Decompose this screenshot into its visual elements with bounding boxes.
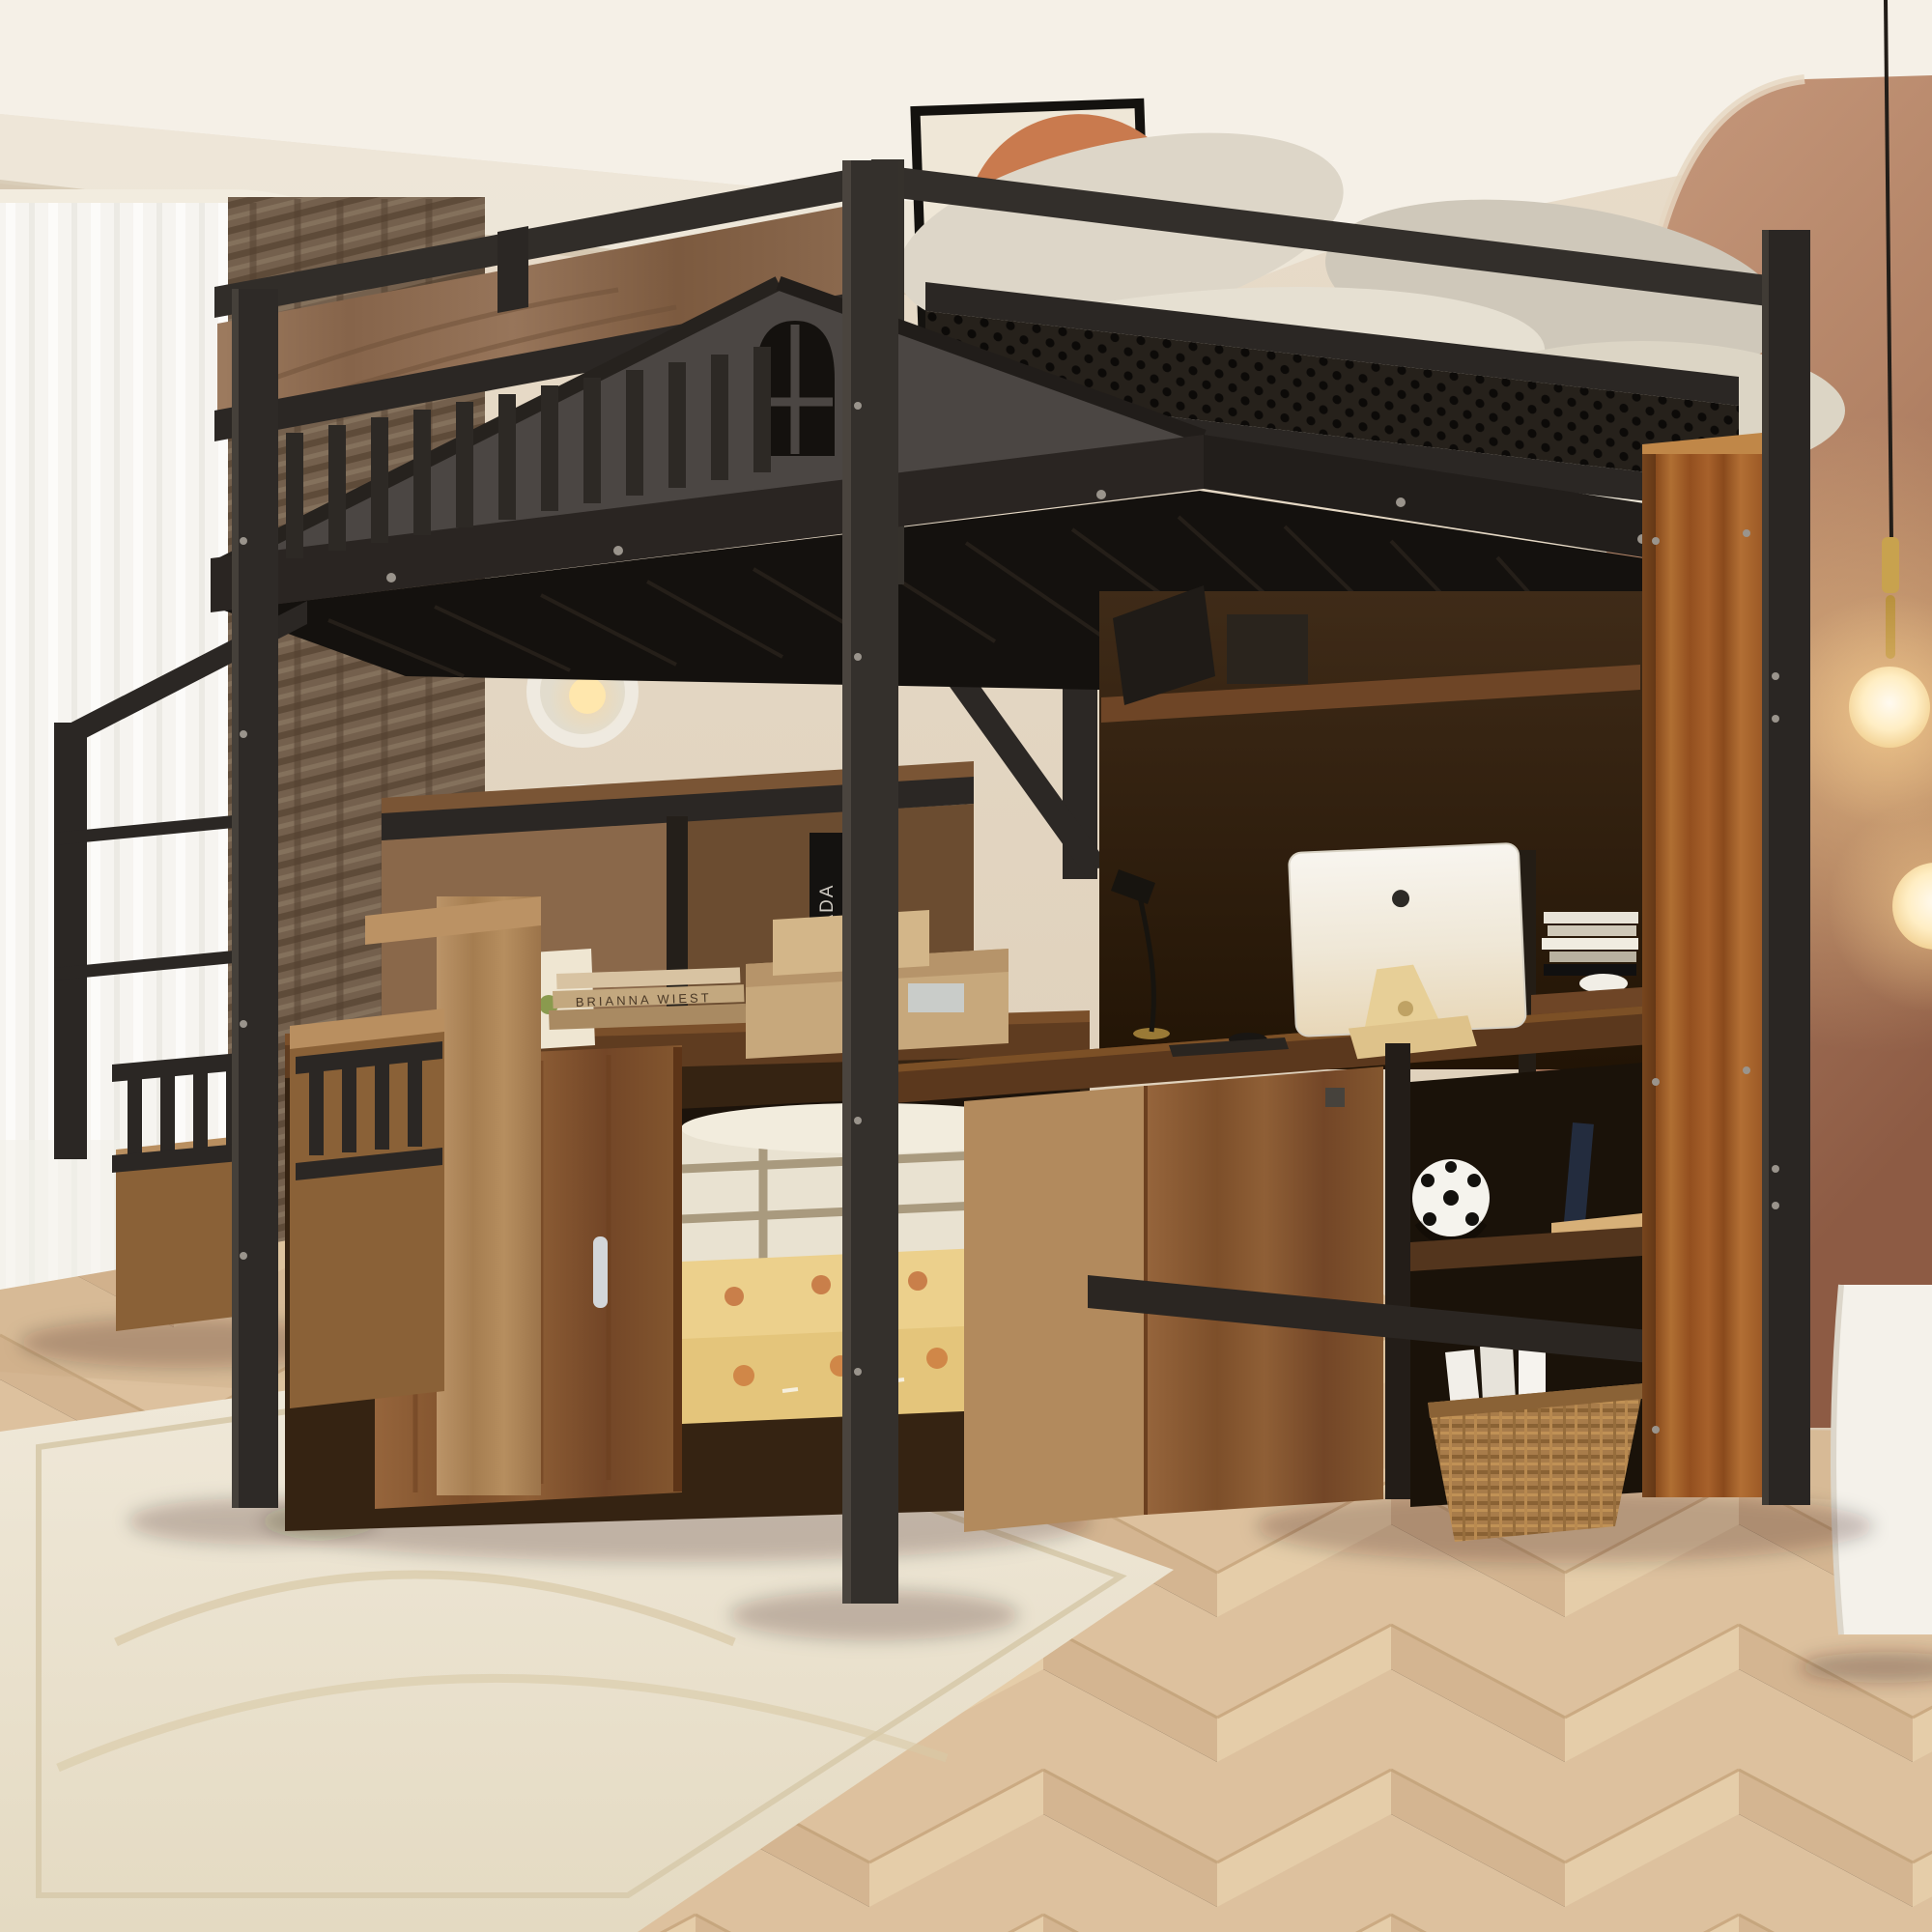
scene-svg: PRADA	[0, 0, 1932, 1932]
shelf-frame-left	[1385, 1043, 1410, 1499]
stair-side-panel	[437, 896, 541, 1495]
fence-slat	[375, 1057, 389, 1150]
railing-slat	[668, 362, 686, 488]
railing-slat	[456, 402, 473, 527]
room-photo: PRADA	[0, 0, 1932, 1932]
imac-computer	[1289, 843, 1527, 1062]
door-edge	[673, 1047, 682, 1492]
railing-slat	[286, 433, 303, 558]
front-left-post	[232, 289, 278, 1508]
box-label-plate	[908, 983, 964, 1012]
screw	[1396, 497, 1406, 507]
stair-rail-post	[54, 723, 87, 1159]
fence-slat	[309, 1063, 324, 1155]
fence-slat	[193, 1066, 208, 1151]
railing-slat	[753, 347, 771, 472]
sconce-bulb	[569, 677, 606, 714]
pillar-front	[1642, 454, 1762, 1497]
cabinet-body	[1833, 1285, 1932, 1634]
post-highlight	[842, 160, 851, 1604]
pendant-gold-stem	[1882, 537, 1899, 593]
fence-slat	[128, 1072, 142, 1157]
railing-slat	[711, 355, 728, 480]
far-right-post	[1762, 230, 1810, 1505]
fence-slat	[160, 1069, 175, 1154]
panel-divider	[497, 226, 528, 313]
chrome-door-handle	[593, 1236, 608, 1308]
wood-pillar	[1642, 433, 1762, 1497]
railing-slat	[371, 417, 388, 543]
desk-cabinet-handle	[1325, 1088, 1345, 1107]
book-pile-right	[1542, 912, 1638, 976]
fence-slat	[408, 1054, 422, 1147]
pillar-shade	[1642, 454, 1656, 1497]
railing-slat	[626, 370, 643, 496]
post-highlight	[1762, 230, 1769, 1505]
shelf-books-dark	[1227, 614, 1308, 684]
railing-slat	[328, 425, 346, 551]
railing-slat	[583, 378, 601, 503]
post-highlight	[232, 289, 239, 1508]
fence-slat	[342, 1060, 356, 1152]
railing-slat	[541, 385, 558, 511]
soccer-ball	[1412, 1159, 1490, 1241]
railing-slat	[413, 410, 431, 535]
pendant-globe-1	[1849, 667, 1930, 748]
railing-slat	[498, 394, 516, 520]
